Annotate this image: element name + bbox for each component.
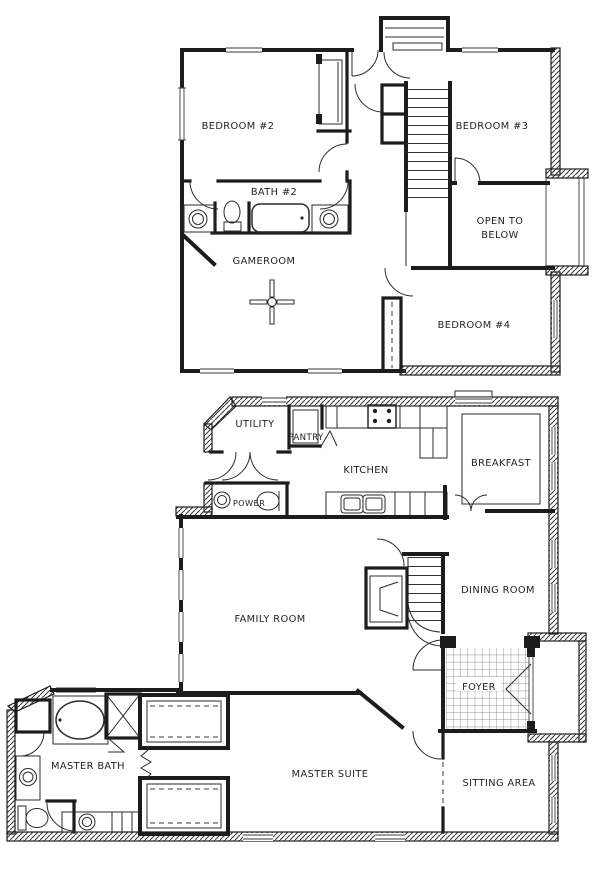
room-label-bedroom-3: BEDROOM #3 [456,121,529,132]
room-label-sitting-area: SITTING AREA [462,778,535,789]
room-label-kitchen: KITCHEN [343,465,388,476]
stairs-upper [406,83,450,268]
room-label-bath-2: BATH #2 [251,187,297,198]
door-break-symbol [141,750,151,780]
bay-window [546,169,588,275]
stove [368,405,396,428]
room-label-family-room: FAMILY ROOM [234,614,305,625]
room-label-breakfast: BREAKFAST [471,458,532,469]
sink [214,492,230,508]
master-closets [140,695,228,834]
upper-floor-plan: BEDROOM #2 BATH #2 GAMEROOM BEDROOM #3 O… [178,18,588,375]
sink-right [320,210,338,228]
ceiling-fan-icon [250,280,294,324]
sink [20,769,37,786]
toilet [18,806,48,830]
room-label-foyer: FOYER [462,682,496,693]
room-label-gameroom: GAMEROOM [233,256,296,267]
sink [79,814,95,830]
chase [383,298,401,371]
room-label-bedroom-2: BEDROOM #2 [202,121,275,132]
room-label-bedroom-4: BEDROOM #4 [438,320,511,331]
chimney [381,18,448,50]
room-label-powder: POWER [233,498,265,508]
vanity [62,812,112,832]
lower-floor-plan: UTILITY PANTRY KITCHEN BREAKFAST POWER F… [7,391,586,841]
room-label-open-to-below-line1: OPEN TO [477,216,524,227]
room-label-master-suite: MASTER SUITE [292,769,369,780]
utility-room [208,452,290,480]
bedroom2-door-arc [319,144,347,172]
sink-left [189,210,207,228]
kitchen-island [178,492,447,517]
room-label-master-bath: MASTER BATH [51,761,125,772]
stair-closet [366,539,407,628]
room-label-utility: UTILITY [235,419,274,430]
room-label-dining-room: DINING ROOM [461,585,535,596]
kitchen-counters [326,405,447,458]
stairs-lower [404,554,447,670]
master-tub [56,701,104,739]
toilet [224,201,241,231]
room-label-pantry: PANTRY [288,433,324,443]
master-suite-walls [178,691,443,832]
room-label-open-to-below-line2: BELOW [481,230,518,241]
family-room-west-wall [177,516,185,690]
floor-plan-drawing: BEDROOM #2 BATH #2 GAMEROOM BEDROOM #3 O… [0,0,600,870]
floorplan-sheet: BEDROOM #2 BATH #2 GAMEROOM BEDROOM #3 O… [0,0,600,870]
hall-closets [355,84,406,143]
